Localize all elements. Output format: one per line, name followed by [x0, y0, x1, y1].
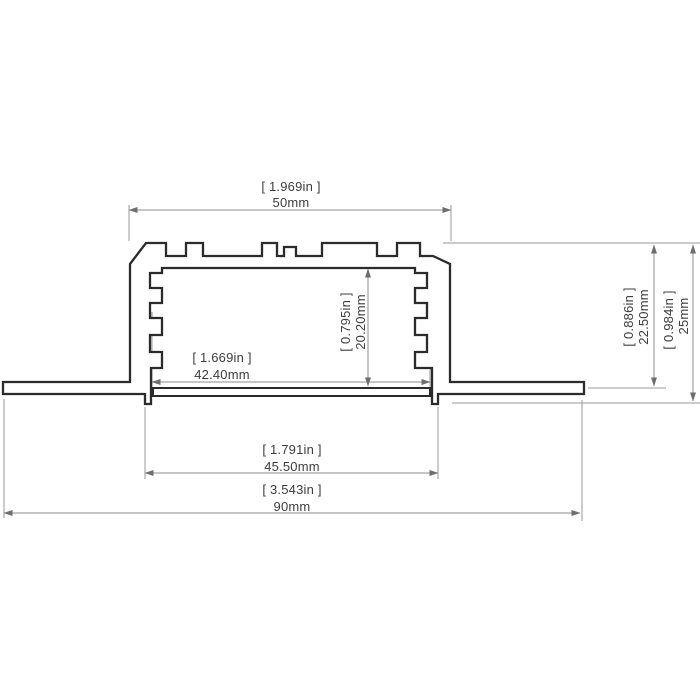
dim-label-total-width-mm: 90mm: [274, 500, 311, 514]
profile-body-outline: [3, 243, 584, 404]
dim-label-body-width-mm: 50mm: [273, 196, 310, 210]
cover-plate: [153, 388, 430, 396]
dim-label-recess-height-inch: [ 0.886in ]: [622, 287, 636, 346]
dim-label-total-width-inch: [ 3.543in ]: [262, 483, 321, 497]
dim-label-recess-height-mm: 22.50mm: [637, 289, 651, 345]
dim-label-body-width-inch: [ 1.969in ]: [261, 180, 320, 194]
dim-label-cavity-width-inch: [ 1.669in ]: [192, 351, 251, 365]
dim-label-total-height-mm: 25mm: [677, 298, 691, 335]
dim-label-cavity-height-inch: [ 0.795in ]: [339, 292, 353, 351]
dim-label-cavity-width-mm: 42.40mm: [194, 368, 250, 382]
dim-label-cutout-width-inch: [ 1.791in ]: [262, 443, 321, 457]
dim-label-total-height-inch: [ 0.984in ]: [662, 290, 676, 349]
dim-label-cavity-height-mm: 20.20mm: [354, 294, 368, 350]
technical-drawing: [ 1.969in ] 50mm [ 1.669in ] 42.40mm [ 0…: [0, 0, 700, 700]
dim-label-cutout-width-mm: 45.50mm: [264, 460, 320, 474]
